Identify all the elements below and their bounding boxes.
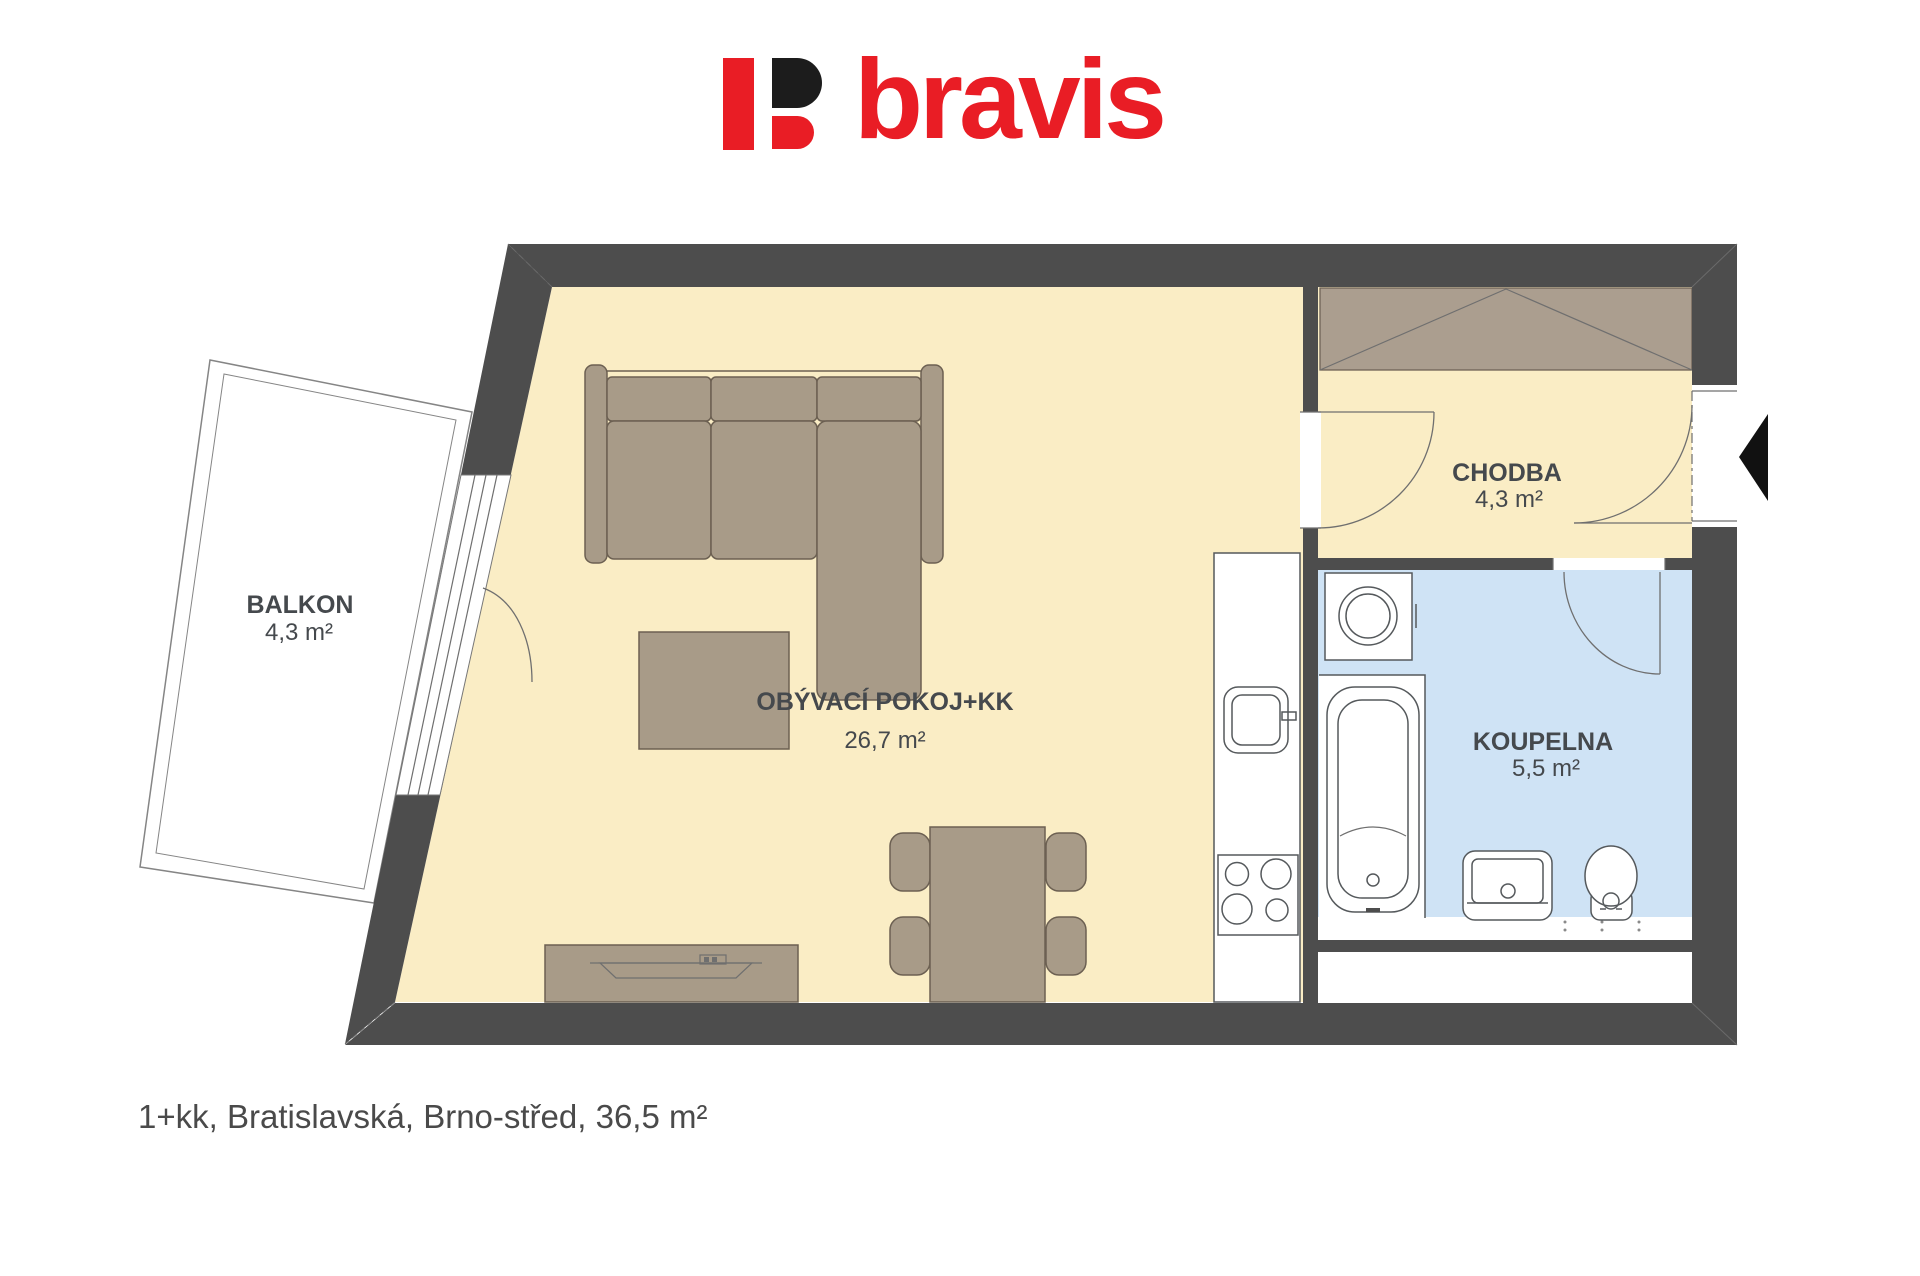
stove-icon — [1218, 855, 1298, 935]
area-balkon: 4,3 m² — [265, 619, 333, 646]
listing-caption: 1+kk, Bratislavská, Brno-střed, 36,5 m² — [138, 1098, 707, 1136]
dining-chair — [890, 833, 930, 891]
floorplan-page: bravis — [0, 0, 1920, 1276]
wall-right-lower — [1692, 527, 1737, 1045]
area-obyvaci-pokoj: 26,7 m² — [844, 727, 925, 754]
shaft-void — [1318, 952, 1692, 1003]
wall-hall-left-lower — [1303, 528, 1318, 1045]
label-koupelna: KOUPELNA — [1473, 728, 1613, 756]
label-chodba: CHODBA — [1452, 459, 1562, 487]
bathtub-icon — [1319, 675, 1425, 918]
dining-chair — [1046, 917, 1086, 975]
wall-bathroom-top-right — [1665, 558, 1692, 570]
entrance-arrow-icon — [1739, 414, 1768, 501]
area-chodba: 4,3 m² — [1475, 486, 1543, 513]
area-koupelna: 5,5 m² — [1512, 755, 1580, 782]
toilet-icon — [1585, 846, 1637, 920]
wall-top — [508, 244, 1737, 287]
dining-chair — [1046, 833, 1086, 891]
dining-chair — [890, 917, 930, 975]
wall-hall-left-upper — [1303, 287, 1318, 412]
wall-bathroom-bottom — [1318, 940, 1692, 952]
wall-bottom — [345, 1003, 1737, 1045]
label-obyvaci-pokoj: OBÝVACÍ POKOJ+KK — [756, 686, 1013, 716]
wall-bathroom-top-left — [1318, 558, 1553, 570]
washing-machine-icon — [1325, 573, 1416, 660]
tv-stand — [545, 945, 798, 1002]
floorplan-drawing: BALKON 4,3 m² OBÝVACÍ POKOJ+KK 26,7 m² C… — [0, 0, 1920, 1276]
wardrobe-icon — [1320, 288, 1692, 370]
washbasin-icon — [1463, 851, 1552, 920]
label-balkon: BALKON — [247, 591, 354, 619]
kitchen — [1214, 553, 1300, 1002]
